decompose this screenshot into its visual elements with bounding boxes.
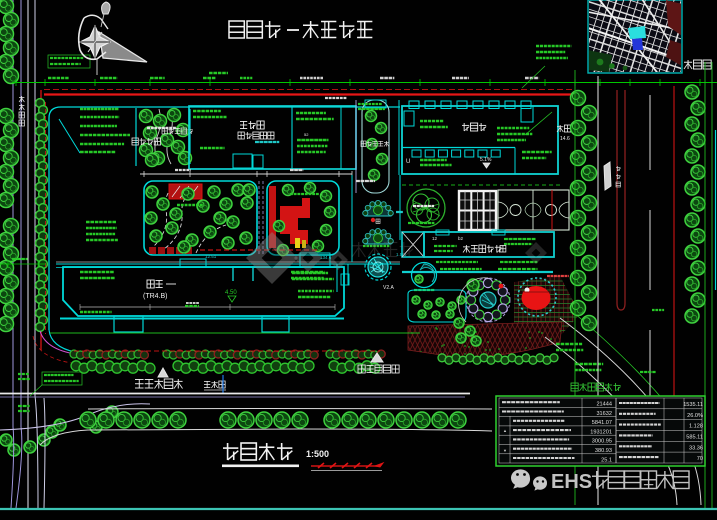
svg-text:14.6: 14.6	[560, 136, 570, 142]
svg-text:3000.95: 3000.95	[592, 439, 612, 445]
svg-text:1:500: 1:500	[306, 449, 329, 459]
svg-text:31632: 31632	[596, 411, 612, 417]
svg-text:585.11: 585.11	[686, 434, 703, 440]
svg-text:V2.A: V2.A	[383, 285, 395, 291]
svg-text:1535.11: 1535.11	[683, 402, 703, 408]
svg-text:26.0%: 26.0%	[687, 413, 703, 419]
svg-text:12: 12	[432, 236, 438, 241]
svg-text:380.93: 380.93	[595, 448, 612, 454]
svg-text:21444: 21444	[596, 402, 612, 408]
svg-text:25.1: 25.1	[601, 457, 612, 463]
svg-text:(TR4.B): (TR4.B)	[143, 293, 168, 300]
svg-text:5841.07: 5841.07	[592, 420, 612, 426]
svg-text:33.36: 33.36	[689, 445, 703, 451]
svg-text:12.51: 12.51	[205, 254, 217, 259]
svg-text:EHS: EHS	[551, 471, 592, 493]
svg-text:70: 70	[697, 456, 703, 462]
svg-text:5.1%: 5.1%	[480, 157, 492, 163]
svg-text:52: 52	[304, 132, 309, 137]
svg-text:1931201: 1931201	[590, 429, 612, 435]
svg-text:b2: b2	[458, 236, 464, 241]
svg-text:U: U	[406, 159, 410, 165]
svg-text:▲: ▲	[503, 428, 507, 433]
svg-text:1.128: 1.128	[689, 424, 703, 430]
svg-text:4.50: 4.50	[225, 290, 237, 296]
svg-text:▼: ▼	[503, 448, 507, 453]
